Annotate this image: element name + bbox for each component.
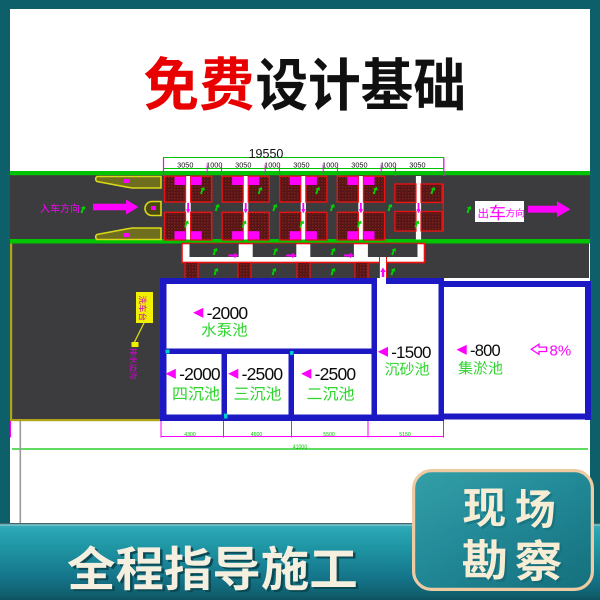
svg-text:41000: 41000: [293, 445, 308, 451]
svg-text:3050: 3050: [409, 160, 425, 169]
svg-text:3050: 3050: [235, 160, 251, 169]
svg-text:-2000: -2000: [179, 364, 221, 384]
svg-text:5150: 5150: [399, 432, 411, 438]
svg-text:-2500: -2500: [242, 364, 284, 384]
svg-text:-1500: -1500: [391, 343, 431, 362]
svg-text:4300: 4300: [184, 432, 196, 438]
svg-text:3050: 3050: [177, 160, 193, 169]
svg-text:3050: 3050: [351, 160, 367, 169]
svg-text:1000: 1000: [322, 160, 338, 169]
svg-text:-2500: -2500: [315, 364, 357, 384]
svg-text:-800: -800: [470, 342, 500, 360]
svg-text:8%: 8%: [550, 343, 572, 360]
svg-text:1000: 1000: [206, 160, 222, 169]
svg-text:3050: 3050: [293, 160, 309, 169]
svg-text:1000: 1000: [380, 160, 396, 169]
svg-text:4600: 4600: [251, 432, 263, 438]
svg-text:1000: 1000: [264, 160, 280, 169]
svg-text:-2000: -2000: [207, 303, 249, 323]
svg-text:5500: 5500: [323, 432, 335, 438]
svg-text:19550: 19550: [249, 147, 284, 161]
